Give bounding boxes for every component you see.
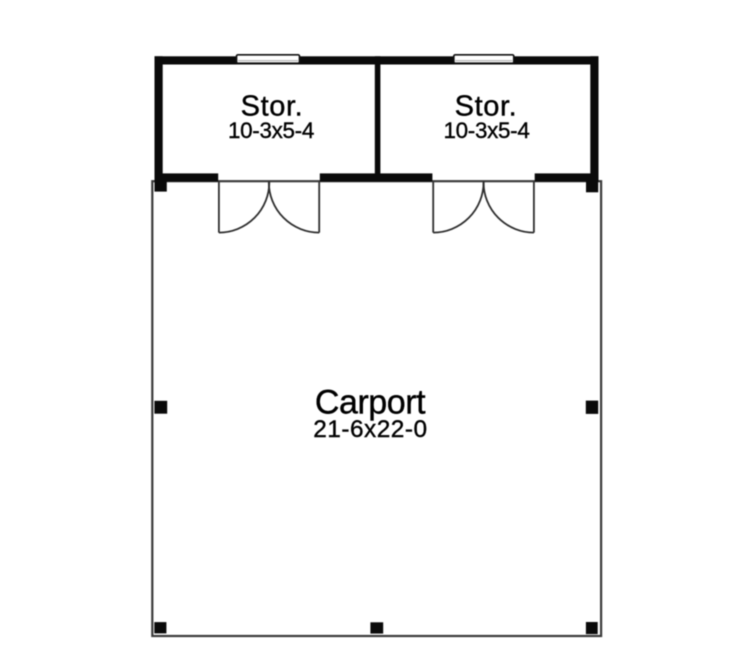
svg-text:10-3x5-4: 10-3x5-4 xyxy=(228,118,314,143)
svg-text:21-6x22-0: 21-6x22-0 xyxy=(313,416,427,443)
svg-text:10-3x5-4: 10-3x5-4 xyxy=(444,118,530,143)
